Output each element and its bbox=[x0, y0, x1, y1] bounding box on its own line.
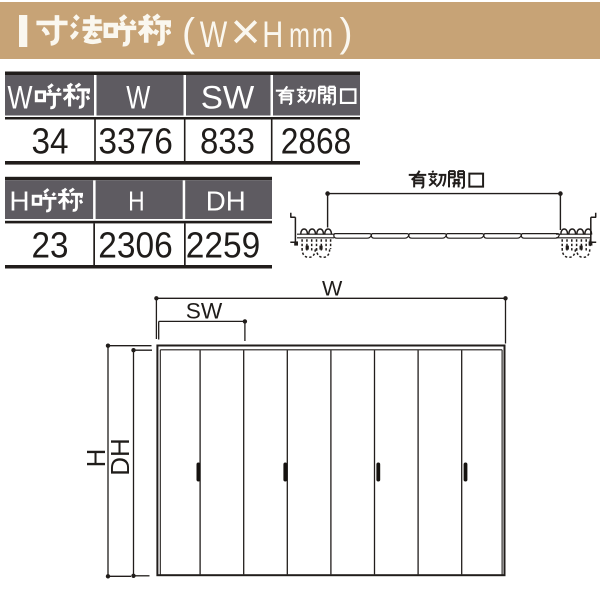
svg-text:SW: SW bbox=[186, 298, 223, 323]
svg-text:m: m bbox=[289, 16, 310, 55]
svg-text:m: m bbox=[312, 16, 333, 55]
svg-text:W: W bbox=[200, 14, 228, 55]
svg-text:(: ( bbox=[182, 11, 196, 55]
svg-text:3376: 3376 bbox=[98, 120, 173, 161]
svg-text:DH: DH bbox=[105, 438, 135, 476]
svg-text:W: W bbox=[126, 80, 151, 116]
svg-text:SW: SW bbox=[201, 80, 255, 116]
svg-text:DH: DH bbox=[206, 186, 246, 217]
svg-text:23: 23 bbox=[32, 225, 69, 266]
svg-text:2306: 2306 bbox=[98, 225, 173, 266]
svg-text:H: H bbox=[128, 186, 145, 217]
svg-text:H: H bbox=[9, 186, 29, 217]
svg-text:H: H bbox=[262, 14, 283, 55]
svg-text:2868: 2868 bbox=[281, 120, 352, 161]
svg-text:×: × bbox=[230, 3, 260, 61]
svg-text:W: W bbox=[8, 80, 34, 116]
svg-text:W: W bbox=[322, 277, 343, 301]
svg-text:2259: 2259 bbox=[186, 225, 261, 266]
svg-text:833: 833 bbox=[200, 120, 255, 161]
svg-text:34: 34 bbox=[32, 120, 69, 161]
svg-text:): ) bbox=[340, 11, 353, 55]
